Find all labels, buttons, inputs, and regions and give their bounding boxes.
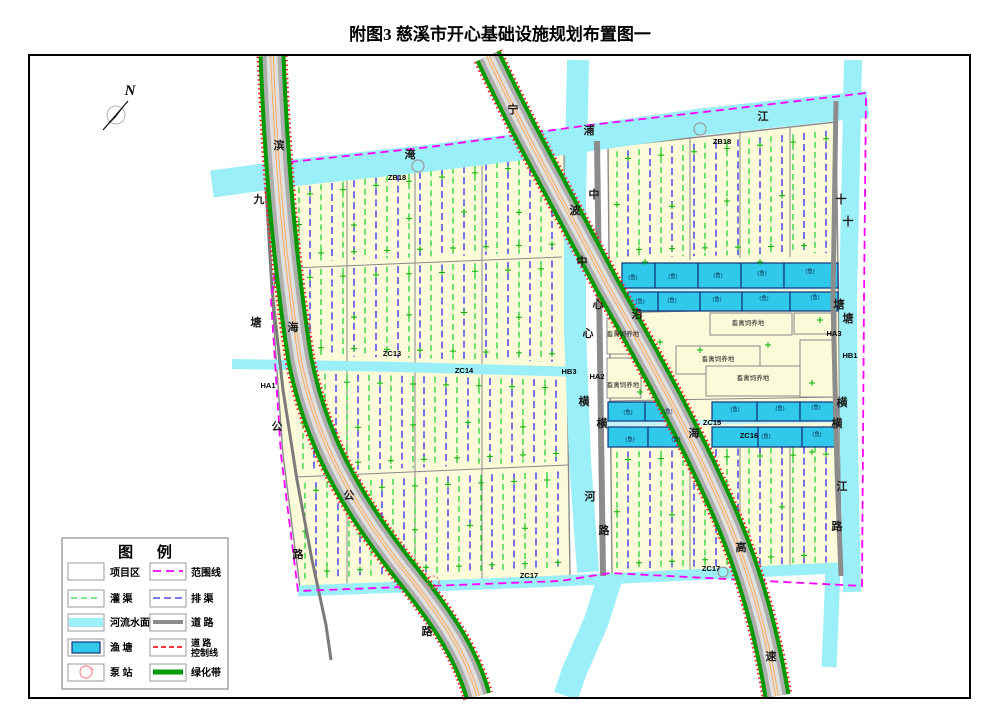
legend-label: 渔 塘 <box>110 641 133 654</box>
central-river-south <box>566 578 610 696</box>
fishpond-label: (鱼) <box>805 267 814 275</box>
expressway-label: 波 <box>570 203 582 217</box>
fishpond-label: (鱼) <box>810 293 819 301</box>
fishpond-label: (鱼) <box>668 272 677 280</box>
legend-swatch-project-area <box>68 563 104 580</box>
fishpond-label: (鱼) <box>713 271 722 279</box>
legend-label: 绿化带 <box>191 666 221 679</box>
legend-label: 泵 站 <box>110 666 133 679</box>
fishpond-label: (鱼) <box>625 435 634 443</box>
canal-code: ZC16 <box>740 431 758 440</box>
binhai-road-label: 滨 <box>274 138 285 152</box>
fishpond-label: (鱼) <box>667 296 676 304</box>
livestock-area-label: 畜禽饲养地 <box>607 380 640 389</box>
fish-pond-cell <box>784 263 838 288</box>
shitang-river-label: 江 <box>837 479 848 493</box>
fish-pond-cell <box>622 263 655 288</box>
fishpond-label: (鱼) <box>811 403 820 411</box>
expressway-label: 速 <box>766 649 777 663</box>
livestock-area-label: 畜禽饲养地 <box>737 373 770 382</box>
livestock-area-label: 畜禽饲养地 <box>607 329 640 338</box>
legend-label: 灌 渠 <box>110 592 133 605</box>
legend-label: 道 路 <box>191 637 212 648</box>
fishpond-label: (鱼) <box>712 295 721 303</box>
node-code: HA2 <box>589 372 604 381</box>
fishpond-label: (鱼) <box>663 407 672 415</box>
central-road-label: 中 <box>589 187 600 201</box>
legend: 图 例 项目区 灌 渠 河流水面 渔 塘 泵 站 范围线 排 渠 道 路 道 路… <box>62 538 228 689</box>
central-road-label: 路 <box>599 523 611 537</box>
pump-station-code: ZB18 <box>388 173 406 182</box>
yanpu-river-label: 江 <box>758 109 769 123</box>
legend-label: 项目区 <box>110 567 140 579</box>
jiutang-road-label: 九 <box>253 192 265 206</box>
north-arrow: N <box>103 83 137 130</box>
livestock-plot <box>800 340 836 397</box>
east-road-label: 十 <box>843 214 854 228</box>
canal-code: ZC15 <box>703 418 721 427</box>
canal-code: ZC14 <box>455 366 474 375</box>
fishpond-label: (鱼) <box>671 435 680 443</box>
expressway-label: 沿 <box>632 307 643 321</box>
fishpond-label: (鱼) <box>812 430 821 438</box>
shitang-river-label: 横 <box>837 395 849 409</box>
fishpond-label: (鱼) <box>759 294 768 302</box>
shitang-river-south <box>829 566 833 667</box>
expressway-label: 宁 <box>508 102 519 116</box>
canal-code: ZC17 <box>520 571 538 580</box>
binhai-road-label: 公 <box>344 489 355 502</box>
central-road <box>597 141 603 576</box>
legend-title: 图 例 <box>118 543 182 561</box>
livestock-area-label: 畜禽饲养地 <box>702 354 735 363</box>
fishpond-label: (鱼) <box>628 273 637 281</box>
shitang-river-label: 十 <box>836 192 847 206</box>
east-road-label: 路 <box>832 519 844 533</box>
legend-label: 范围线 <box>191 566 221 579</box>
jiutang-road-label: 公 <box>272 420 283 433</box>
central-river-label: 心 <box>583 327 594 340</box>
central-road-label: 横 <box>597 416 609 430</box>
pump-station-code: ZB18 <box>713 137 731 146</box>
legend-label: 道 路 <box>191 616 214 629</box>
legend-label: 控制线 <box>191 647 218 658</box>
page-title: 附图3 慈溪市开心基础设施规划布置图一 <box>349 24 651 44</box>
central-river-label: 河 <box>585 489 596 503</box>
fishpond-label: (鱼) <box>757 269 766 277</box>
legend-label: 排 渠 <box>191 592 214 605</box>
fishpond-label: (鱼) <box>775 404 784 412</box>
canal-code: ZC13 <box>383 349 401 358</box>
shitang-river-label: 塘 <box>834 297 845 311</box>
central-road-label: 心 <box>593 298 604 311</box>
fishpond-label: (鱼) <box>635 297 644 305</box>
canal-code: ZC17 <box>702 564 720 573</box>
jiutang-road-label: 路 <box>293 547 305 561</box>
central-river-label: 横 <box>579 394 591 408</box>
binhai-road-label: 海 <box>288 320 299 334</box>
shitang-river <box>848 60 853 592</box>
expressway-label: 高 <box>736 540 747 554</box>
fishpond-label: (鱼) <box>623 408 632 416</box>
east-road-label: 塘 <box>843 311 854 325</box>
node-code: HB1 <box>842 351 857 360</box>
legend-label: 河流水面 <box>110 616 150 629</box>
binhai-road-label: 路 <box>422 624 434 638</box>
yanpu-river-label: 浦 <box>584 123 595 137</box>
central-river-label: 中 <box>577 254 588 268</box>
expressway-label: 海 <box>689 426 700 440</box>
fishpond-label: (鱼) <box>730 405 739 413</box>
livestock-area-label: 畜禽饲养地 <box>732 318 765 327</box>
node-code: HA3 <box>826 329 841 338</box>
jiutang-road-label: 塘 <box>251 315 262 329</box>
node-code: HB3 <box>561 367 576 376</box>
east-road-label: 横 <box>832 416 844 430</box>
yanpu-river-label: 淹 <box>405 147 417 161</box>
node-code: HA1 <box>260 381 275 390</box>
north-label: N <box>124 83 137 99</box>
fishpond-label: (鱼) <box>761 432 770 440</box>
fish-pond-cell <box>658 292 700 311</box>
planning-map: 附图3 慈溪市开心基础设施规划布置图一 <box>0 0 1000 725</box>
